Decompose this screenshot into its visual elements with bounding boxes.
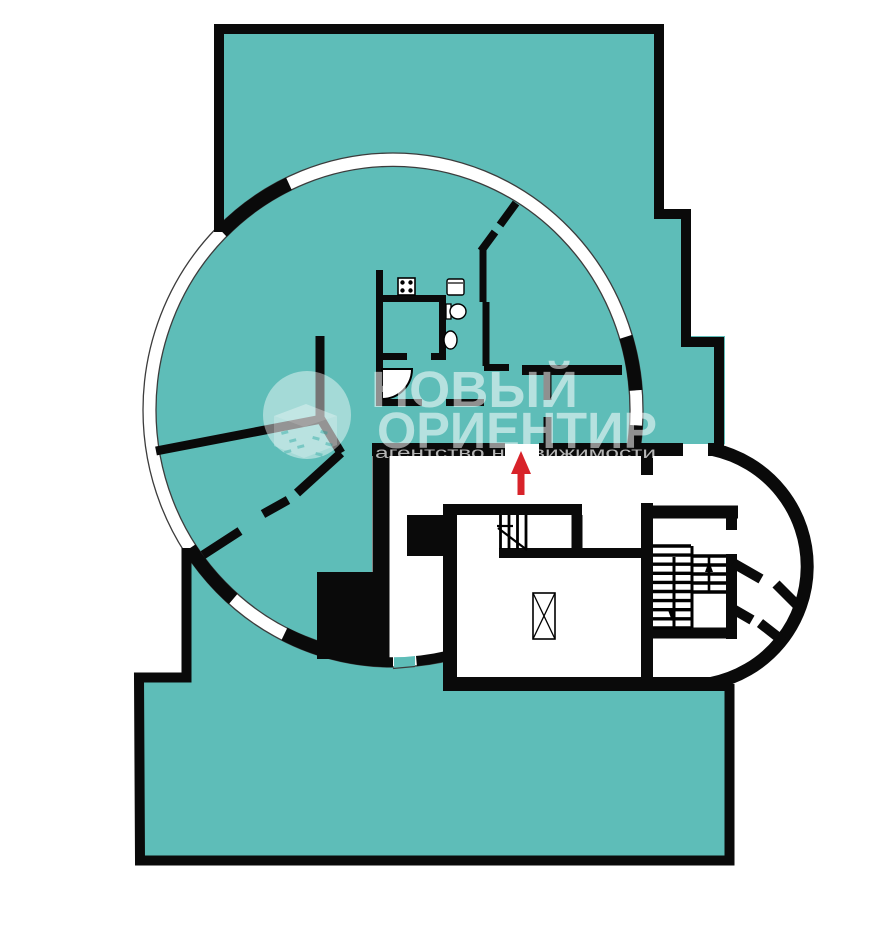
svg-text:агентство недвижимости: агентство недвижимости — [375, 445, 656, 462]
